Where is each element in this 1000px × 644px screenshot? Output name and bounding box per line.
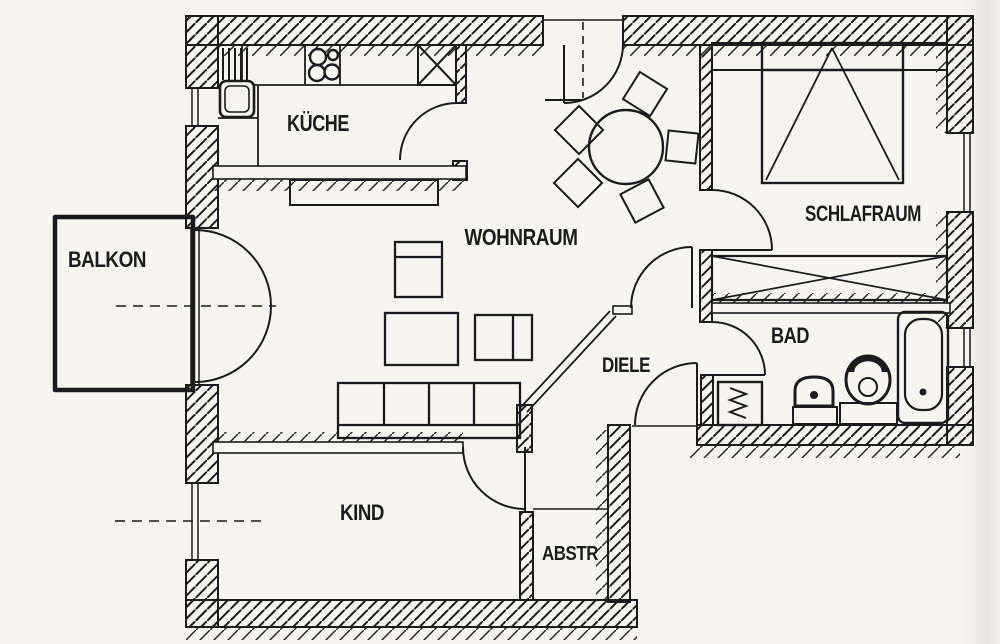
room-label-balkon: BALKON [68, 247, 146, 272]
floor-plan-page: BALKON KÜCHE WOHNRAUM SCHLAFRAUM BAD DIE… [0, 0, 1000, 644]
sink-icon [220, 81, 254, 117]
wall-left-1 [186, 16, 218, 88]
wall-kind-top [213, 442, 463, 453]
wall-diele-top [613, 306, 632, 314]
wall-right-2 [947, 212, 973, 328]
wall-kitchen-bottom [213, 166, 466, 179]
room-label-wohnraum: WOHNRAUM [465, 224, 578, 250]
room-label-diele: DIELE [602, 354, 650, 377]
wall-right-1 [947, 16, 973, 133]
room-label-schlafraum: SCHLAFRAUM [805, 201, 921, 226]
room-label-bad: BAD [771, 323, 809, 348]
room-label-kind: KIND [340, 500, 384, 525]
wall-kitchen-stub [456, 45, 466, 103]
room-label-kueche: KÜCHE [287, 110, 349, 136]
room-label-abstr: ABSTR [542, 543, 599, 565]
wall-left-3 [186, 385, 218, 483]
wall-bath-left [701, 375, 713, 425]
wall-top-left [186, 16, 543, 45]
wall-abstr-left [520, 512, 533, 600]
wall-top-right [623, 16, 973, 45]
wall-bath-bottom [697, 425, 973, 445]
wall-bottom [186, 600, 637, 627]
wall-bedroom-left-lower [700, 250, 712, 322]
wall-bedroom-left-upper [700, 45, 712, 190]
floor-plan-drawing: BALKON KÜCHE WOHNRAUM SCHLAFRAUM BAD DIE… [0, 0, 1000, 644]
wall-abstr-right [608, 425, 630, 602]
paper-background [0, 0, 1000, 644]
